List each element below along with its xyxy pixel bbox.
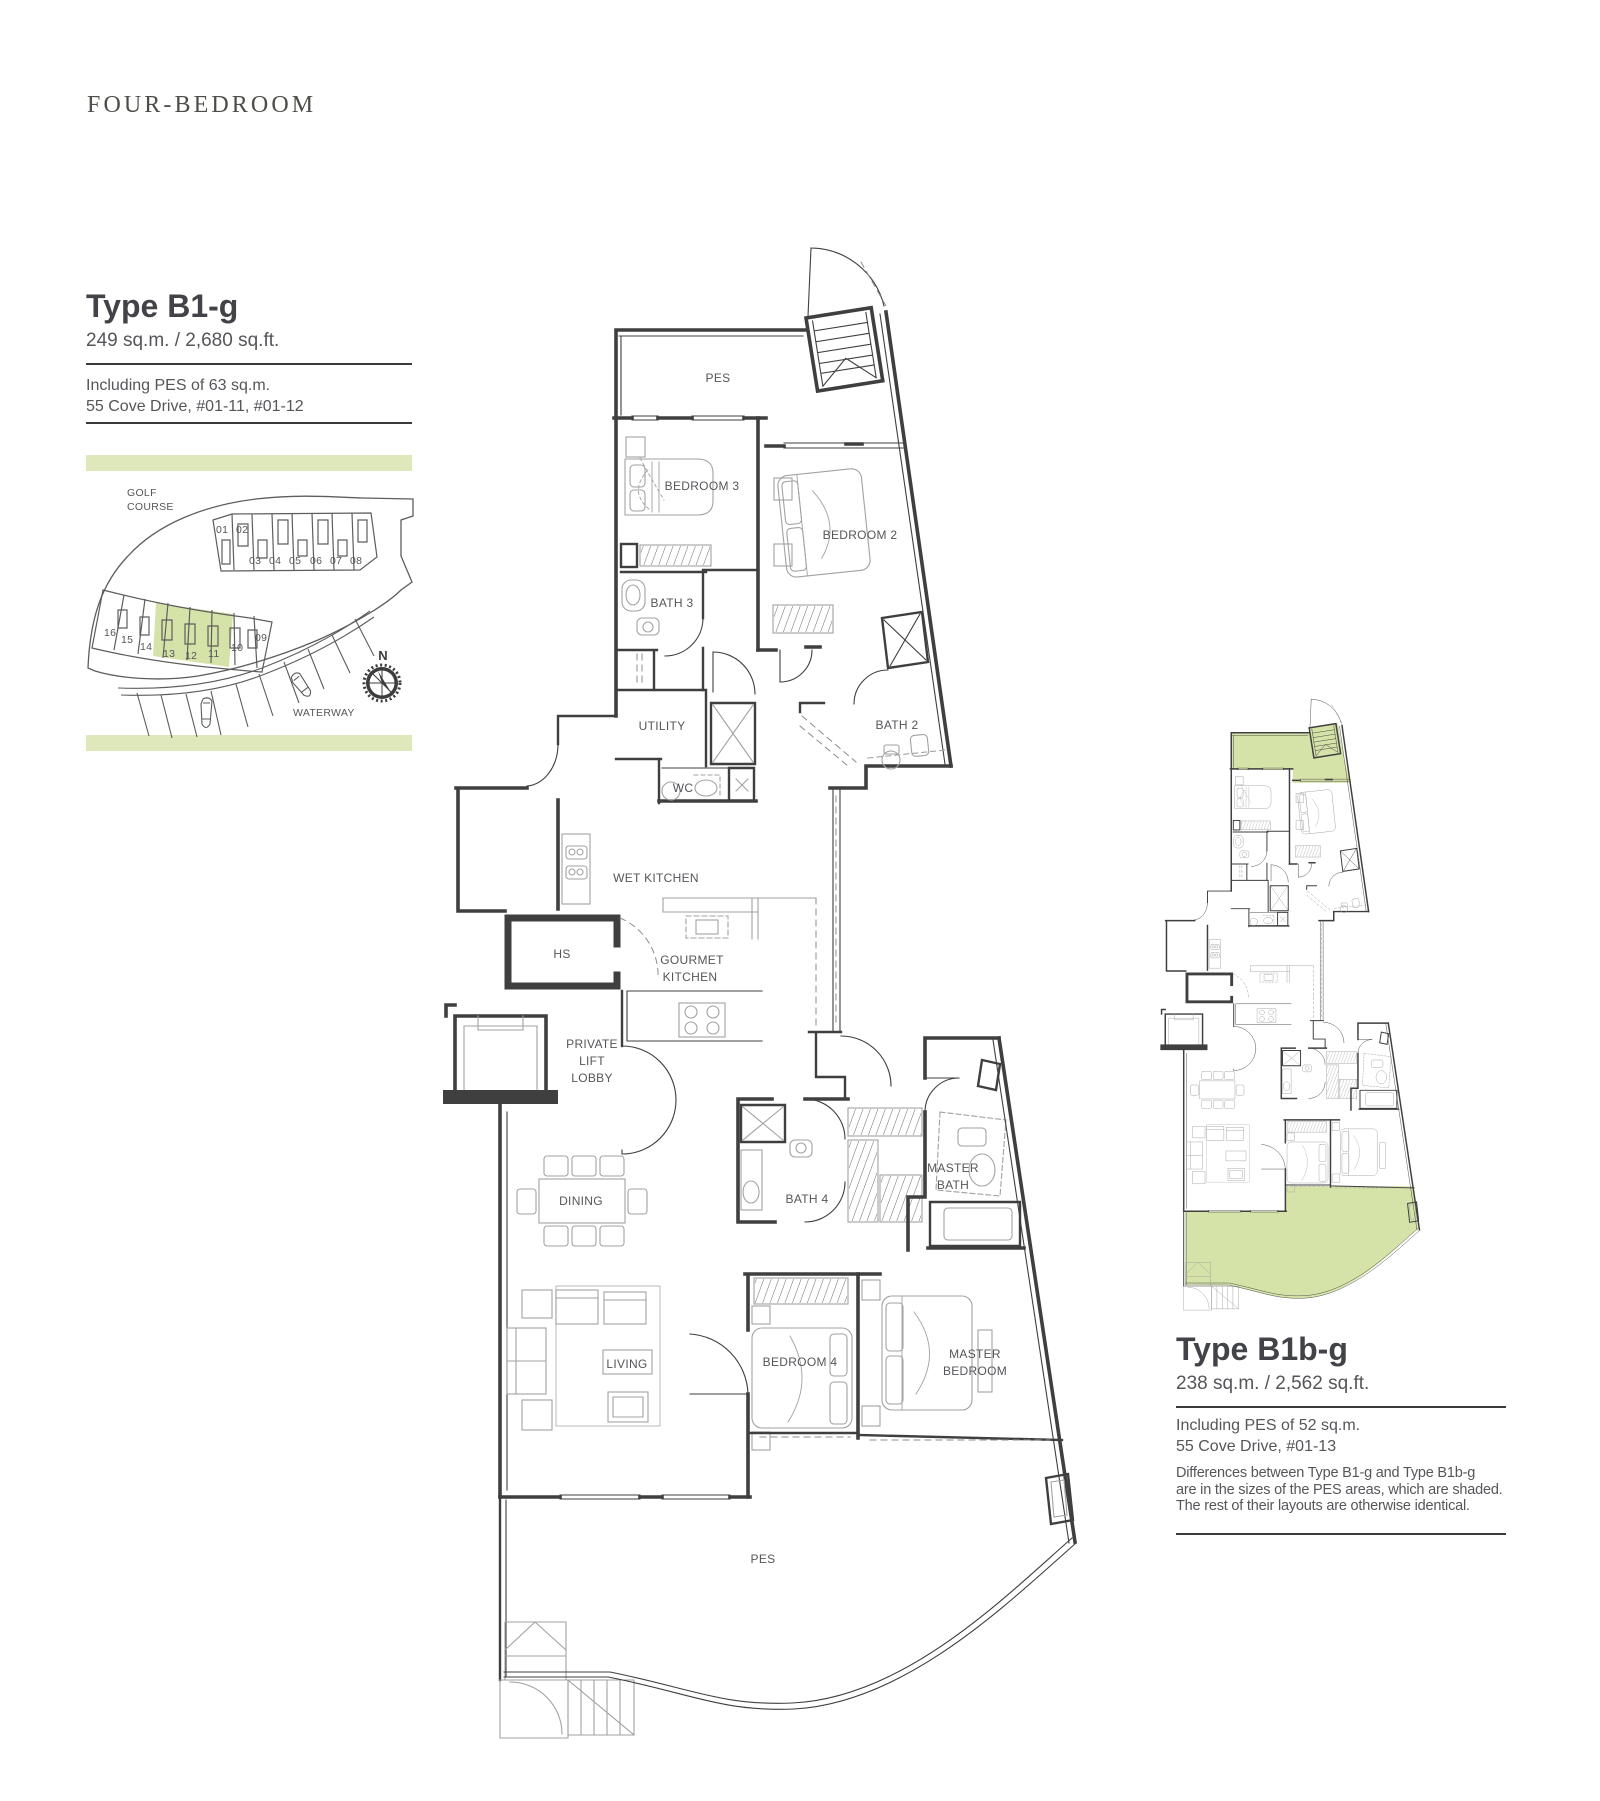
svg-text:WATERWAY: WATERWAY bbox=[293, 707, 355, 719]
svg-text:10: 10 bbox=[231, 642, 243, 654]
svg-text:DINING: DINING bbox=[559, 1194, 603, 1208]
svg-text:BATH 4: BATH 4 bbox=[786, 1192, 829, 1206]
svg-text:N: N bbox=[378, 648, 387, 663]
svg-text:BATH 3: BATH 3 bbox=[651, 596, 694, 610]
svg-text:BEDROOM 4: BEDROOM 4 bbox=[763, 1355, 838, 1369]
svg-text:15: 15 bbox=[121, 634, 133, 646]
svg-text:BATH 2: BATH 2 bbox=[876, 718, 919, 732]
svg-text:05: 05 bbox=[289, 555, 301, 567]
svg-text:GOLF: GOLF bbox=[127, 487, 157, 499]
svg-text:08: 08 bbox=[350, 555, 362, 567]
svg-text:LIFT: LIFT bbox=[579, 1054, 605, 1068]
svg-text:LIVING: LIVING bbox=[606, 1357, 647, 1371]
svg-text:14: 14 bbox=[140, 641, 152, 653]
svg-text:WET KITCHEN: WET KITCHEN bbox=[613, 871, 699, 885]
svg-text:12: 12 bbox=[185, 650, 197, 662]
svg-text:COURSE: COURSE bbox=[127, 501, 174, 513]
svg-text:LOBBY: LOBBY bbox=[571, 1071, 613, 1085]
svg-text:PES: PES bbox=[706, 371, 731, 385]
svg-text:MASTER: MASTER bbox=[949, 1347, 1001, 1361]
svg-text:16: 16 bbox=[104, 627, 116, 639]
svg-text:01: 01 bbox=[216, 524, 228, 536]
svg-text:PRIVATE: PRIVATE bbox=[566, 1037, 618, 1051]
svg-text:03: 03 bbox=[249, 555, 261, 567]
svg-text:HS: HS bbox=[553, 947, 570, 961]
svg-text:13: 13 bbox=[163, 648, 175, 660]
svg-text:07: 07 bbox=[330, 555, 342, 567]
svg-text:11: 11 bbox=[208, 648, 220, 660]
svg-text:BATH: BATH bbox=[937, 1178, 969, 1192]
svg-text:02: 02 bbox=[236, 524, 248, 536]
svg-text:WC: WC bbox=[673, 781, 694, 795]
svg-text:KITCHEN: KITCHEN bbox=[663, 970, 718, 984]
svg-text:09: 09 bbox=[255, 632, 267, 644]
svg-text:04: 04 bbox=[269, 555, 281, 567]
svg-text:UTILITY: UTILITY bbox=[639, 719, 686, 733]
svg-text:MASTER: MASTER bbox=[927, 1161, 979, 1175]
svg-text:BEDROOM 3: BEDROOM 3 bbox=[665, 479, 740, 493]
svg-text:06: 06 bbox=[310, 555, 322, 567]
svg-text:GOURMET: GOURMET bbox=[660, 953, 724, 967]
svg-text:BEDROOM 2: BEDROOM 2 bbox=[823, 528, 898, 542]
svg-text:BEDROOM: BEDROOM bbox=[943, 1364, 1007, 1378]
svg-text:PES: PES bbox=[751, 1552, 776, 1566]
